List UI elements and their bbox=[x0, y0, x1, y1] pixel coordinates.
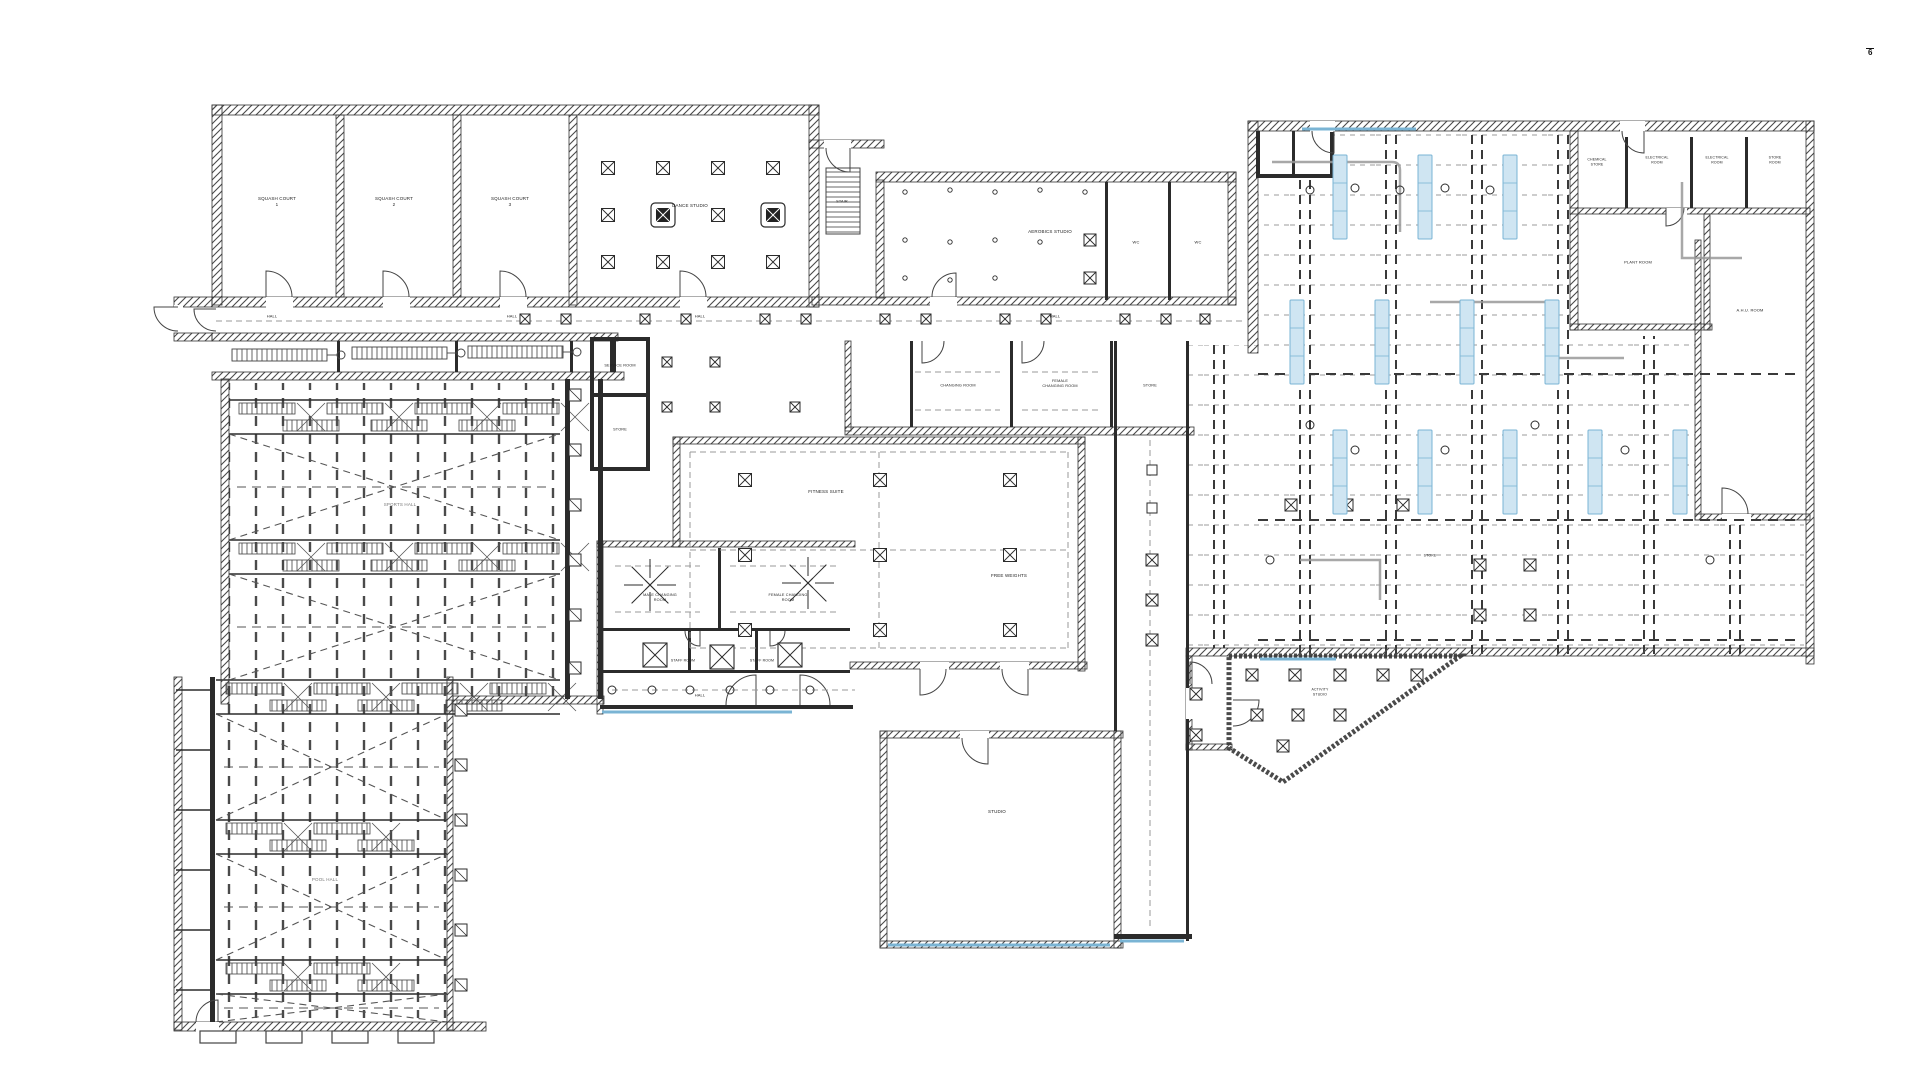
ceiling-dot-icon bbox=[993, 190, 997, 194]
ceiling-diffuser-icon bbox=[921, 314, 931, 324]
partition-wall bbox=[610, 341, 616, 372]
partition-wall bbox=[646, 337, 650, 397]
ceiling-diffuser-icon bbox=[874, 624, 887, 637]
roof-beam bbox=[226, 683, 282, 694]
roof-beam bbox=[358, 700, 414, 711]
roof-beam bbox=[415, 543, 471, 554]
ceiling-diffuser-icon bbox=[712, 162, 725, 175]
light-strip-icon bbox=[1588, 430, 1602, 514]
ceiling-diffuser-icon bbox=[662, 357, 672, 367]
ceiling-dot-icon bbox=[903, 276, 907, 280]
ceiling-diffuser-icon bbox=[1120, 314, 1130, 324]
shower-fan-icon bbox=[643, 643, 667, 667]
door-opening bbox=[920, 662, 949, 670]
ceiling-diffuser-icon bbox=[1334, 709, 1346, 721]
buttress bbox=[398, 1031, 434, 1043]
room-floor bbox=[1570, 208, 1712, 330]
wall bbox=[1186, 744, 1232, 750]
partition-wall bbox=[1186, 341, 1189, 941]
light-strip-icon bbox=[1333, 430, 1347, 514]
door-arc bbox=[922, 341, 944, 363]
ceiling-diffuser-icon bbox=[1084, 234, 1096, 246]
roof-beam bbox=[239, 543, 295, 554]
door-opening bbox=[1000, 662, 1029, 670]
floor-plan-drawing bbox=[0, 0, 1920, 1080]
wall bbox=[174, 1022, 486, 1031]
partition-wall bbox=[570, 341, 573, 372]
wall bbox=[845, 427, 1194, 435]
ceiling-diffuser-icon bbox=[710, 357, 720, 367]
door-arc bbox=[962, 738, 988, 764]
counter-body bbox=[352, 347, 447, 359]
ceiling-diffuser-icon bbox=[1377, 669, 1389, 681]
roof-beam bbox=[503, 543, 559, 554]
light-strip-icon bbox=[1503, 430, 1517, 514]
wall bbox=[1704, 214, 1710, 330]
partition-wall bbox=[1690, 137, 1693, 208]
wall bbox=[1570, 131, 1578, 330]
strip-body bbox=[1460, 300, 1474, 384]
light-strip-icon bbox=[1418, 430, 1432, 514]
ceiling-diffuser-icon bbox=[767, 256, 780, 269]
ceiling-diffuser-icon bbox=[1397, 499, 1409, 511]
partition-wall bbox=[1256, 131, 1260, 178]
ceiling-diffuser-icon bbox=[640, 314, 650, 324]
wall bbox=[174, 333, 212, 341]
ceiling-diffuser-icon bbox=[739, 549, 752, 562]
ceiling-diffuser-icon bbox=[1004, 549, 1017, 562]
wall bbox=[1228, 172, 1236, 305]
strip-body bbox=[1333, 430, 1347, 514]
partition-wall bbox=[1105, 182, 1108, 300]
ceiling-diffuser-icon bbox=[710, 402, 720, 412]
vent-box-icon bbox=[569, 662, 581, 674]
fan-arrow bbox=[632, 590, 645, 603]
partition-wall bbox=[1292, 131, 1295, 174]
floor-plan-sheet: SQUASH COURT 1SQUASH COURT 2SQUASH COURT… bbox=[0, 0, 1920, 1080]
roof-beam bbox=[314, 823, 370, 834]
door-arc bbox=[1002, 669, 1028, 695]
vent-box-icon bbox=[455, 979, 467, 991]
door-arc bbox=[920, 669, 946, 695]
roof-beam bbox=[270, 980, 326, 991]
fan-arrow bbox=[813, 588, 826, 601]
roof-beam bbox=[283, 420, 339, 431]
strip-body bbox=[1503, 430, 1517, 514]
fan-arrow bbox=[632, 567, 645, 580]
ceiling-diffuser-icon bbox=[1277, 740, 1289, 752]
roof-beam bbox=[459, 560, 515, 571]
vent-box-icon bbox=[569, 554, 581, 566]
roof-beam bbox=[314, 963, 370, 974]
light-strip-icon bbox=[1673, 430, 1687, 514]
wall bbox=[212, 105, 819, 115]
ceiling-diffuser-icon bbox=[1190, 688, 1202, 700]
door-opening bbox=[174, 305, 183, 332]
ceiling-diffuser-icon bbox=[712, 209, 725, 222]
roof-beam bbox=[314, 683, 370, 694]
ceiling-dot-icon bbox=[948, 278, 952, 282]
ceiling-diffuser-icon bbox=[1474, 609, 1486, 621]
partition-wall bbox=[646, 397, 650, 471]
light-strip-icon bbox=[1375, 300, 1389, 384]
wall bbox=[1186, 648, 1814, 656]
door-opening bbox=[680, 297, 707, 308]
ceiling-diffuser-icon bbox=[1146, 554, 1158, 566]
roof-beam bbox=[283, 560, 339, 571]
roof-beam bbox=[327, 543, 383, 554]
partition-wall bbox=[1745, 137, 1748, 208]
ceiling-diffuser-icon bbox=[1524, 609, 1536, 621]
wall bbox=[1695, 240, 1701, 520]
buttress bbox=[332, 1031, 368, 1043]
counter-unit bbox=[468, 346, 581, 358]
door-arc bbox=[932, 273, 956, 297]
partition-wall bbox=[755, 628, 758, 672]
door-arc bbox=[680, 271, 706, 297]
door-opening bbox=[266, 297, 293, 308]
page-number: 6 bbox=[1866, 48, 1874, 58]
wall bbox=[845, 341, 851, 431]
ceiling-diffuser-icon bbox=[1146, 634, 1158, 646]
roof-beam bbox=[371, 420, 427, 431]
partition-wall bbox=[1010, 341, 1013, 427]
wall bbox=[673, 437, 680, 547]
door-opening bbox=[824, 140, 851, 149]
ceiling-diffuser-icon bbox=[681, 314, 691, 324]
column-icon bbox=[651, 203, 675, 227]
ceiling-diffuser-icon bbox=[1000, 314, 1010, 324]
ceiling-diffuser-icon bbox=[1146, 594, 1158, 606]
shower-fan-icon bbox=[778, 643, 802, 667]
strip-body bbox=[1418, 155, 1432, 239]
stair-flight bbox=[826, 168, 860, 234]
roof-beam bbox=[358, 840, 414, 851]
ceiling-diffuser-icon bbox=[602, 209, 615, 222]
column-icon bbox=[761, 203, 785, 227]
ceiling-diffuser-icon bbox=[874, 549, 887, 562]
door-opening bbox=[1022, 333, 1045, 342]
wall bbox=[336, 115, 344, 297]
roof-beam bbox=[490, 683, 546, 694]
wall bbox=[212, 372, 624, 380]
ceiling-dot-icon bbox=[1083, 190, 1087, 194]
vent-box-icon bbox=[455, 814, 467, 826]
access-panel-icon bbox=[1147, 503, 1157, 513]
vent-box-icon bbox=[455, 924, 467, 936]
vent-box-icon bbox=[455, 704, 467, 716]
ceiling-diffuser-icon bbox=[662, 402, 672, 412]
door-opening bbox=[922, 333, 945, 342]
roof-beam bbox=[270, 700, 326, 711]
ceiling-diffuser-icon bbox=[602, 256, 615, 269]
ceiling-grid bbox=[1186, 345, 1258, 648]
ceiling-diffuser-icon bbox=[790, 402, 800, 412]
wall bbox=[212, 105, 222, 305]
roof-beam bbox=[226, 823, 282, 834]
light-strip-icon bbox=[1418, 155, 1432, 239]
wall bbox=[1114, 731, 1121, 948]
roof-beam bbox=[415, 403, 471, 414]
partition-wall bbox=[590, 337, 650, 341]
wall bbox=[673, 437, 1085, 444]
door-opening bbox=[1620, 121, 1645, 132]
light-strip-icon bbox=[1545, 300, 1559, 384]
wall bbox=[876, 172, 1236, 182]
door-arc bbox=[266, 271, 292, 297]
wall bbox=[880, 731, 1123, 738]
door-arc bbox=[685, 631, 700, 646]
ceiling-diffuser-icon bbox=[1190, 729, 1202, 741]
ceiling-dot-icon bbox=[948, 188, 952, 192]
ceiling-dot-icon bbox=[1038, 240, 1042, 244]
partition-wall bbox=[718, 548, 721, 628]
wall bbox=[1806, 121, 1814, 664]
partition-wall bbox=[590, 337, 594, 397]
ceiling-diffuser-icon bbox=[1289, 669, 1301, 681]
vent-box-icon bbox=[569, 499, 581, 511]
wall bbox=[812, 297, 1236, 305]
fan-arrow bbox=[790, 565, 803, 578]
ceiling-diffuser-icon bbox=[712, 256, 725, 269]
ceiling-diffuser-icon bbox=[1411, 669, 1423, 681]
partition-wall bbox=[1625, 137, 1628, 208]
ceiling-diffuser-icon bbox=[801, 314, 811, 324]
light-strip-icon bbox=[1460, 300, 1474, 384]
strip-body bbox=[1673, 430, 1687, 514]
wall bbox=[174, 677, 182, 1030]
ceiling-dot-icon bbox=[993, 238, 997, 242]
ceiling-diffuser-icon bbox=[1334, 669, 1346, 681]
counter-unit bbox=[232, 349, 345, 361]
ceiling-dot-icon bbox=[903, 238, 907, 242]
strip-body bbox=[1545, 300, 1559, 384]
fan-arrow bbox=[813, 565, 826, 578]
partition-wall bbox=[600, 628, 850, 631]
light-strip-icon bbox=[1503, 155, 1517, 239]
ceiling-diffuser-icon bbox=[1474, 559, 1486, 571]
door-opening bbox=[500, 297, 527, 308]
partition-wall bbox=[1256, 174, 1332, 178]
light-strip-icon bbox=[1333, 155, 1347, 239]
wall bbox=[221, 379, 229, 704]
ceiling-diffuser-icon bbox=[1524, 559, 1536, 571]
wall bbox=[850, 662, 1087, 669]
partition-wall bbox=[600, 670, 850, 673]
access-panel-icon bbox=[1147, 465, 1157, 475]
roof-beam bbox=[226, 963, 282, 974]
roof-beam bbox=[358, 980, 414, 991]
wall bbox=[453, 696, 604, 704]
ceiling-diffuser-icon bbox=[1004, 474, 1017, 487]
fan-arrow bbox=[790, 588, 803, 601]
ceiling-dot-icon bbox=[948, 240, 952, 244]
ceiling-diffuser-icon bbox=[1251, 709, 1263, 721]
partition-wall bbox=[598, 379, 603, 699]
wall bbox=[569, 115, 577, 305]
counter-end bbox=[573, 348, 581, 356]
partition-wall bbox=[1114, 341, 1117, 731]
roof-beam bbox=[239, 403, 295, 414]
extract-fan-icon bbox=[624, 559, 676, 611]
room-floor bbox=[1695, 240, 1811, 520]
partition-wall bbox=[455, 341, 458, 372]
vent-box-icon bbox=[569, 389, 581, 401]
ceiling-dot-icon bbox=[903, 190, 907, 194]
ceiling-diffuser-icon bbox=[767, 162, 780, 175]
wall bbox=[1570, 208, 1810, 214]
ceiling-diffuser-icon bbox=[657, 256, 670, 269]
door-arc bbox=[500, 271, 526, 297]
wall bbox=[880, 731, 887, 948]
partition-wall bbox=[1168, 182, 1171, 300]
partition-wall bbox=[590, 397, 594, 471]
buttress bbox=[200, 1031, 236, 1043]
wall bbox=[1570, 324, 1712, 330]
wall bbox=[447, 677, 453, 1030]
door-arc bbox=[726, 675, 756, 705]
ceiling-diffuser-icon bbox=[760, 314, 770, 324]
ceiling-diffuser-icon bbox=[874, 474, 887, 487]
strip-body bbox=[1290, 300, 1304, 384]
ceiling-diffuser-icon bbox=[520, 314, 530, 324]
wall bbox=[1078, 437, 1085, 671]
strip-body bbox=[1588, 430, 1602, 514]
ceiling-diffuser-icon bbox=[1246, 669, 1258, 681]
wall bbox=[876, 180, 884, 298]
ceiling-diffuser-icon bbox=[1292, 709, 1304, 721]
wall bbox=[453, 115, 461, 297]
roof-beam bbox=[459, 420, 515, 431]
vent-box-icon bbox=[569, 444, 581, 456]
roof-beam bbox=[503, 403, 559, 414]
roof-beam bbox=[327, 403, 383, 414]
ceiling-diffuser-icon bbox=[1004, 624, 1017, 637]
strip-body bbox=[1418, 430, 1432, 514]
ceiling-diffuser-icon bbox=[561, 314, 571, 324]
wall bbox=[809, 105, 819, 307]
ceiling-dot-icon bbox=[993, 276, 997, 280]
extract-fan-icon bbox=[782, 557, 834, 609]
shower-fan-icon bbox=[710, 645, 734, 669]
strip-body bbox=[1333, 155, 1347, 239]
counter-body bbox=[468, 346, 563, 358]
strip-body bbox=[1503, 155, 1517, 239]
partition-wall bbox=[1110, 341, 1113, 427]
vent-box-icon bbox=[569, 609, 581, 621]
door-arc bbox=[1190, 662, 1212, 684]
partition-wall bbox=[565, 379, 570, 699]
partition-wall bbox=[1114, 934, 1192, 939]
fan-arrow bbox=[655, 590, 668, 603]
roof-beam bbox=[371, 560, 427, 571]
vent-box-icon bbox=[455, 759, 467, 771]
ceiling-diffuser-icon bbox=[1200, 314, 1210, 324]
ceiling-diffuser-icon bbox=[739, 474, 752, 487]
door-opening bbox=[383, 297, 410, 308]
partition-wall bbox=[910, 341, 913, 427]
door-opening bbox=[930, 297, 957, 306]
partition-wall bbox=[210, 677, 215, 1022]
light-strip-icon bbox=[1290, 300, 1304, 384]
ceiling-diffuser-icon bbox=[739, 624, 752, 637]
door-opening bbox=[960, 731, 989, 739]
door-arc bbox=[1022, 341, 1044, 363]
wall bbox=[212, 333, 618, 341]
ceiling-diffuser-icon bbox=[1285, 499, 1297, 511]
partition-wall bbox=[600, 705, 853, 709]
ceiling-diffuser-icon bbox=[602, 162, 615, 175]
wall bbox=[597, 541, 855, 547]
counter-unit bbox=[352, 347, 465, 359]
strip-body bbox=[1375, 300, 1389, 384]
counter-body bbox=[232, 349, 327, 361]
door-arc bbox=[383, 271, 409, 297]
ceiling-diffuser-icon bbox=[657, 162, 670, 175]
roof-beam bbox=[270, 840, 326, 851]
ceiling-diffuser-icon bbox=[1161, 314, 1171, 324]
counter-end bbox=[457, 349, 465, 357]
ceiling-diffuser-icon bbox=[1084, 272, 1096, 284]
fan-arrow bbox=[655, 567, 668, 580]
vent-box-icon bbox=[455, 869, 467, 881]
ceiling-diffuser-icon bbox=[880, 314, 890, 324]
ceiling-dot-icon bbox=[1038, 188, 1042, 192]
buttress bbox=[266, 1031, 302, 1043]
ceiling-diffuser-icon bbox=[1041, 314, 1051, 324]
